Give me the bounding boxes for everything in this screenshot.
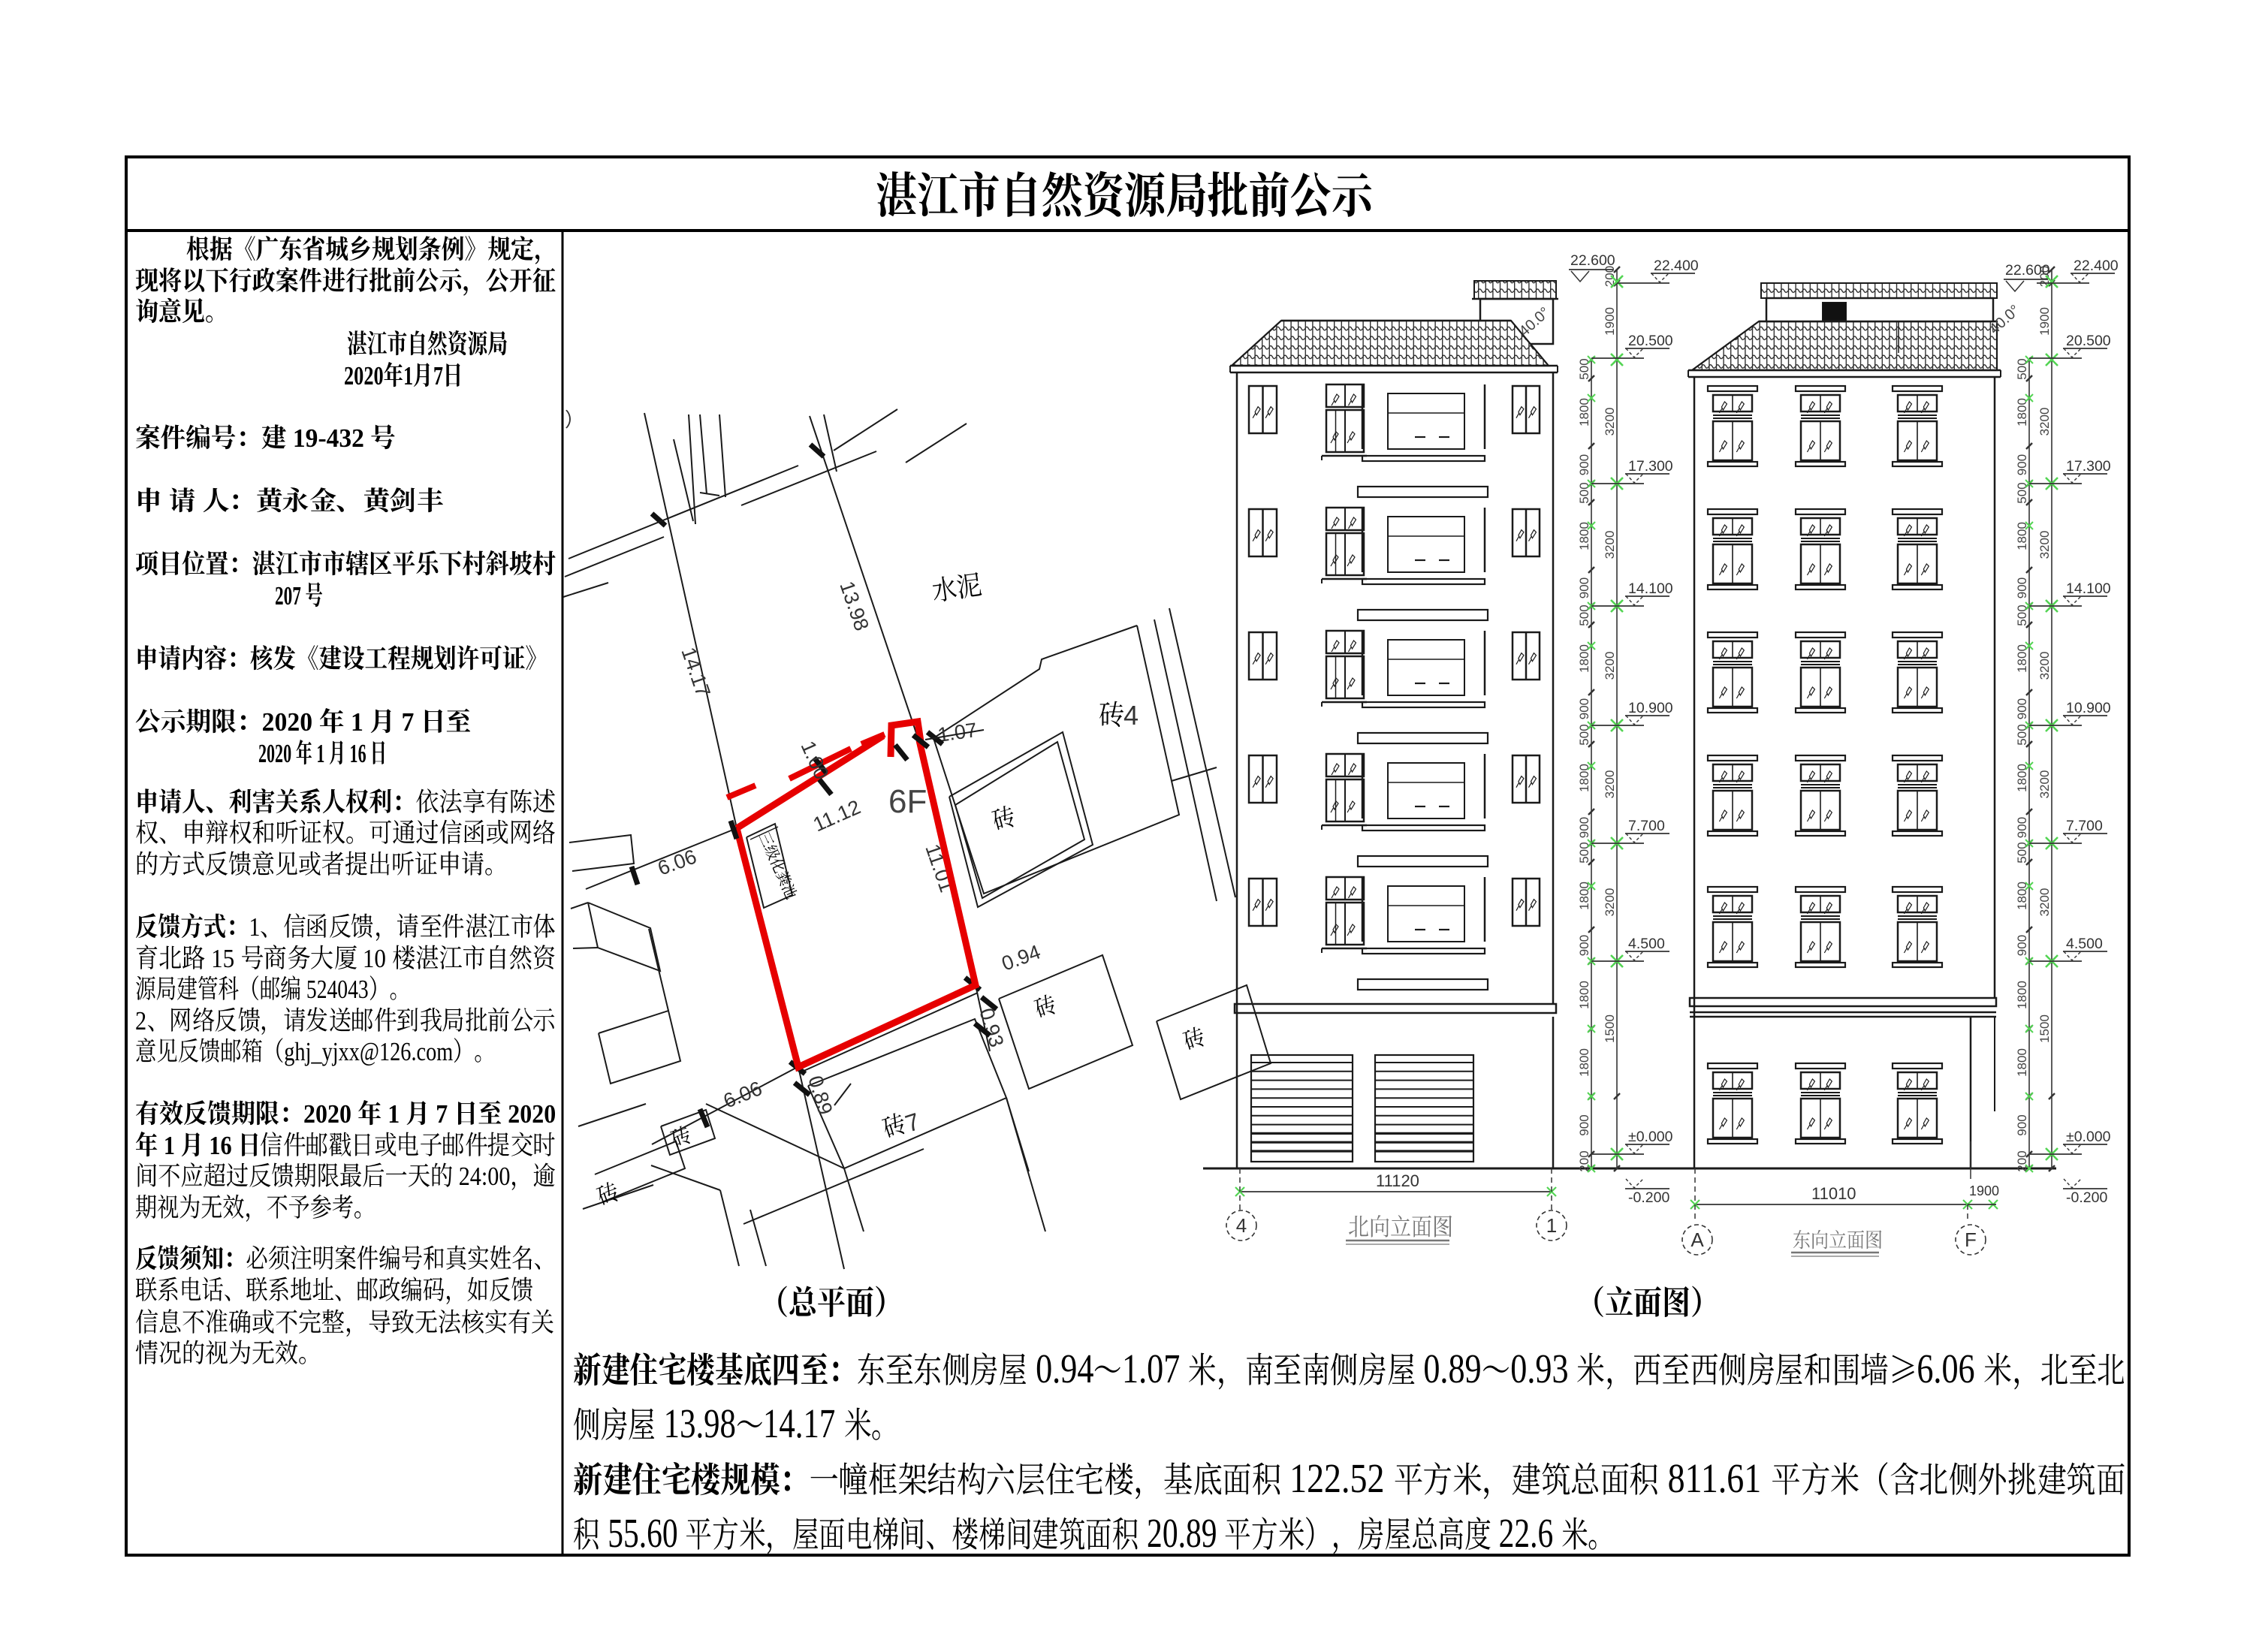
svg-text:22.6: 22.6: [1491, 1511, 1561, 1557]
svg-text:22.600: 22.600: [1570, 252, 1615, 269]
svg-text:900: 900: [1577, 817, 1591, 838]
svg-text:13.98: 13.98: [656, 1400, 736, 1446]
svg-text:A: A: [1691, 1228, 1704, 1251]
svg-text:11010: 11010: [1811, 1184, 1856, 1203]
svg-text:0.89: 0.89: [1415, 1346, 1481, 1392]
svg-text:1900: 1900: [1969, 1183, 1999, 1198]
svg-text:10: 10: [357, 944, 392, 973]
svg-text:900: 900: [1577, 1114, 1591, 1135]
svg-text:ghj_yjxx@126.com: ghj_yjxx@126.com: [284, 1037, 453, 1066]
svg-text:1800: 1800: [1577, 398, 1591, 427]
svg-text:2020: 2020: [303, 1100, 357, 1129]
svg-text:-0.200: -0.200: [1628, 1189, 1669, 1206]
svg-text:1800: 1800: [2015, 398, 2029, 427]
svg-text:2020: 2020: [262, 707, 319, 737]
svg-text:20.500: 20.500: [1628, 333, 1673, 349]
svg-text:1500: 1500: [1603, 1014, 1617, 1043]
svg-text:±0.000: ±0.000: [2066, 1129, 2111, 1145]
svg-text:55.60: 55.60: [600, 1511, 686, 1557]
svg-text:900: 900: [2015, 817, 2029, 838]
svg-text:900: 900: [1577, 577, 1591, 598]
svg-text:122.52: 122.52: [1281, 1455, 1393, 1501]
svg-text:20.89: 20.89: [1139, 1511, 1225, 1557]
svg-text:2020: 2020: [344, 360, 384, 390]
svg-text:900: 900: [1577, 454, 1591, 475]
svg-text:4.500: 4.500: [2066, 936, 2103, 952]
svg-text:1: 1: [345, 707, 370, 737]
svg-text:0.93: 0.93: [1510, 1346, 1576, 1392]
svg-text:2020: 2020: [502, 1100, 556, 1129]
svg-text:6.06: 6.06: [1917, 1346, 1983, 1392]
svg-text:1800: 1800: [1577, 882, 1591, 910]
svg-text:3200: 3200: [1603, 888, 1617, 917]
svg-text:2020: 2020: [258, 740, 296, 768]
svg-text:900: 900: [2015, 1114, 2029, 1135]
svg-text:3200: 3200: [1603, 531, 1617, 559]
svg-text:4: 4: [1236, 1214, 1247, 1237]
svg-text:4.500: 4.500: [1628, 936, 1665, 952]
svg-text:17.300: 17.300: [2066, 458, 2111, 475]
svg-text:1800: 1800: [1577, 981, 1591, 1009]
svg-text:10.900: 10.900: [2066, 700, 2111, 716]
svg-text:7: 7: [433, 360, 443, 390]
svg-text:1: 1: [403, 360, 413, 390]
svg-text:1.07: 1.07: [1122, 1346, 1188, 1392]
svg-text:3200: 3200: [2037, 770, 2052, 799]
svg-text:7.700: 7.700: [1628, 818, 1665, 834]
svg-text:17.300: 17.300: [1628, 458, 1673, 475]
svg-text:524043: 524043: [301, 975, 369, 1004]
svg-text:200: 200: [1577, 1150, 1591, 1171]
svg-text:1900: 1900: [1603, 307, 1617, 336]
svg-text:1: 1: [1546, 1214, 1557, 1237]
svg-text:2: 2: [135, 1007, 146, 1036]
svg-text:F: F: [1965, 1228, 1977, 1251]
svg-text:22.400: 22.400: [2074, 258, 2119, 274]
svg-text:1500: 1500: [2037, 1014, 2052, 1043]
svg-text:3200: 3200: [2037, 531, 2052, 559]
svg-text:20.500: 20.500: [2066, 333, 2111, 349]
svg-text:900: 900: [2015, 698, 2029, 719]
svg-text:900: 900: [2015, 577, 2029, 598]
svg-text:900: 900: [1577, 698, 1591, 719]
svg-text:19-432: 19-432: [286, 424, 370, 453]
svg-text:1800: 1800: [2015, 882, 2029, 910]
svg-text:-0.200: -0.200: [2066, 1189, 2107, 1206]
svg-text:11120: 11120: [1376, 1171, 1419, 1190]
svg-text:3200: 3200: [2037, 652, 2052, 680]
svg-text:900: 900: [1577, 935, 1591, 956]
svg-text:811.61: 811.61: [1659, 1455, 1770, 1501]
svg-text:22.600: 22.600: [2005, 262, 2050, 279]
svg-text:14.17: 14.17: [763, 1400, 843, 1446]
svg-text:7: 7: [395, 707, 421, 737]
svg-text:3200: 3200: [1603, 408, 1617, 436]
svg-text:1800: 1800: [1577, 522, 1591, 550]
svg-text:3200: 3200: [1603, 770, 1617, 799]
svg-text:1: 1: [158, 1132, 180, 1161]
svg-text:）: ）: [565, 408, 584, 431]
svg-text:3200: 3200: [2037, 408, 2052, 436]
svg-text:22.400: 22.400: [1654, 258, 1699, 274]
svg-text:900: 900: [2015, 454, 2029, 475]
svg-text:7: 7: [430, 1100, 454, 1129]
svg-text:1800: 1800: [2015, 522, 2029, 550]
svg-text:207: 207: [275, 583, 306, 611]
svg-text:4: 4: [1123, 700, 1139, 731]
svg-text:14.100: 14.100: [2066, 580, 2111, 597]
svg-text:24:00: 24:00: [453, 1162, 510, 1192]
svg-text:7.700: 7.700: [2066, 818, 2103, 834]
svg-text:14.100: 14.100: [1628, 580, 1673, 597]
svg-text:1800: 1800: [1577, 1048, 1591, 1077]
svg-text:1800: 1800: [2015, 981, 2029, 1009]
svg-text:6F: 6F: [888, 783, 927, 820]
svg-text:3200: 3200: [2037, 888, 2052, 917]
svg-text:900: 900: [2015, 935, 2029, 956]
svg-text:10.900: 10.900: [1628, 700, 1673, 716]
svg-text:200: 200: [2015, 1150, 2029, 1171]
svg-text:15: 15: [205, 944, 240, 973]
svg-text:16: 16: [345, 740, 370, 768]
svg-text:1: 1: [382, 1100, 406, 1129]
svg-text:16: 16: [204, 1132, 237, 1161]
svg-text:1800: 1800: [2015, 1048, 2029, 1077]
svg-text:±0.000: ±0.000: [1628, 1129, 1673, 1145]
svg-text:0.94: 0.94: [1027, 1346, 1093, 1392]
svg-text:1900: 1900: [2037, 307, 2052, 336]
svg-text:3200: 3200: [1603, 652, 1617, 680]
svg-text:1: 1: [249, 913, 260, 942]
svg-text:1: 1: [312, 740, 329, 768]
